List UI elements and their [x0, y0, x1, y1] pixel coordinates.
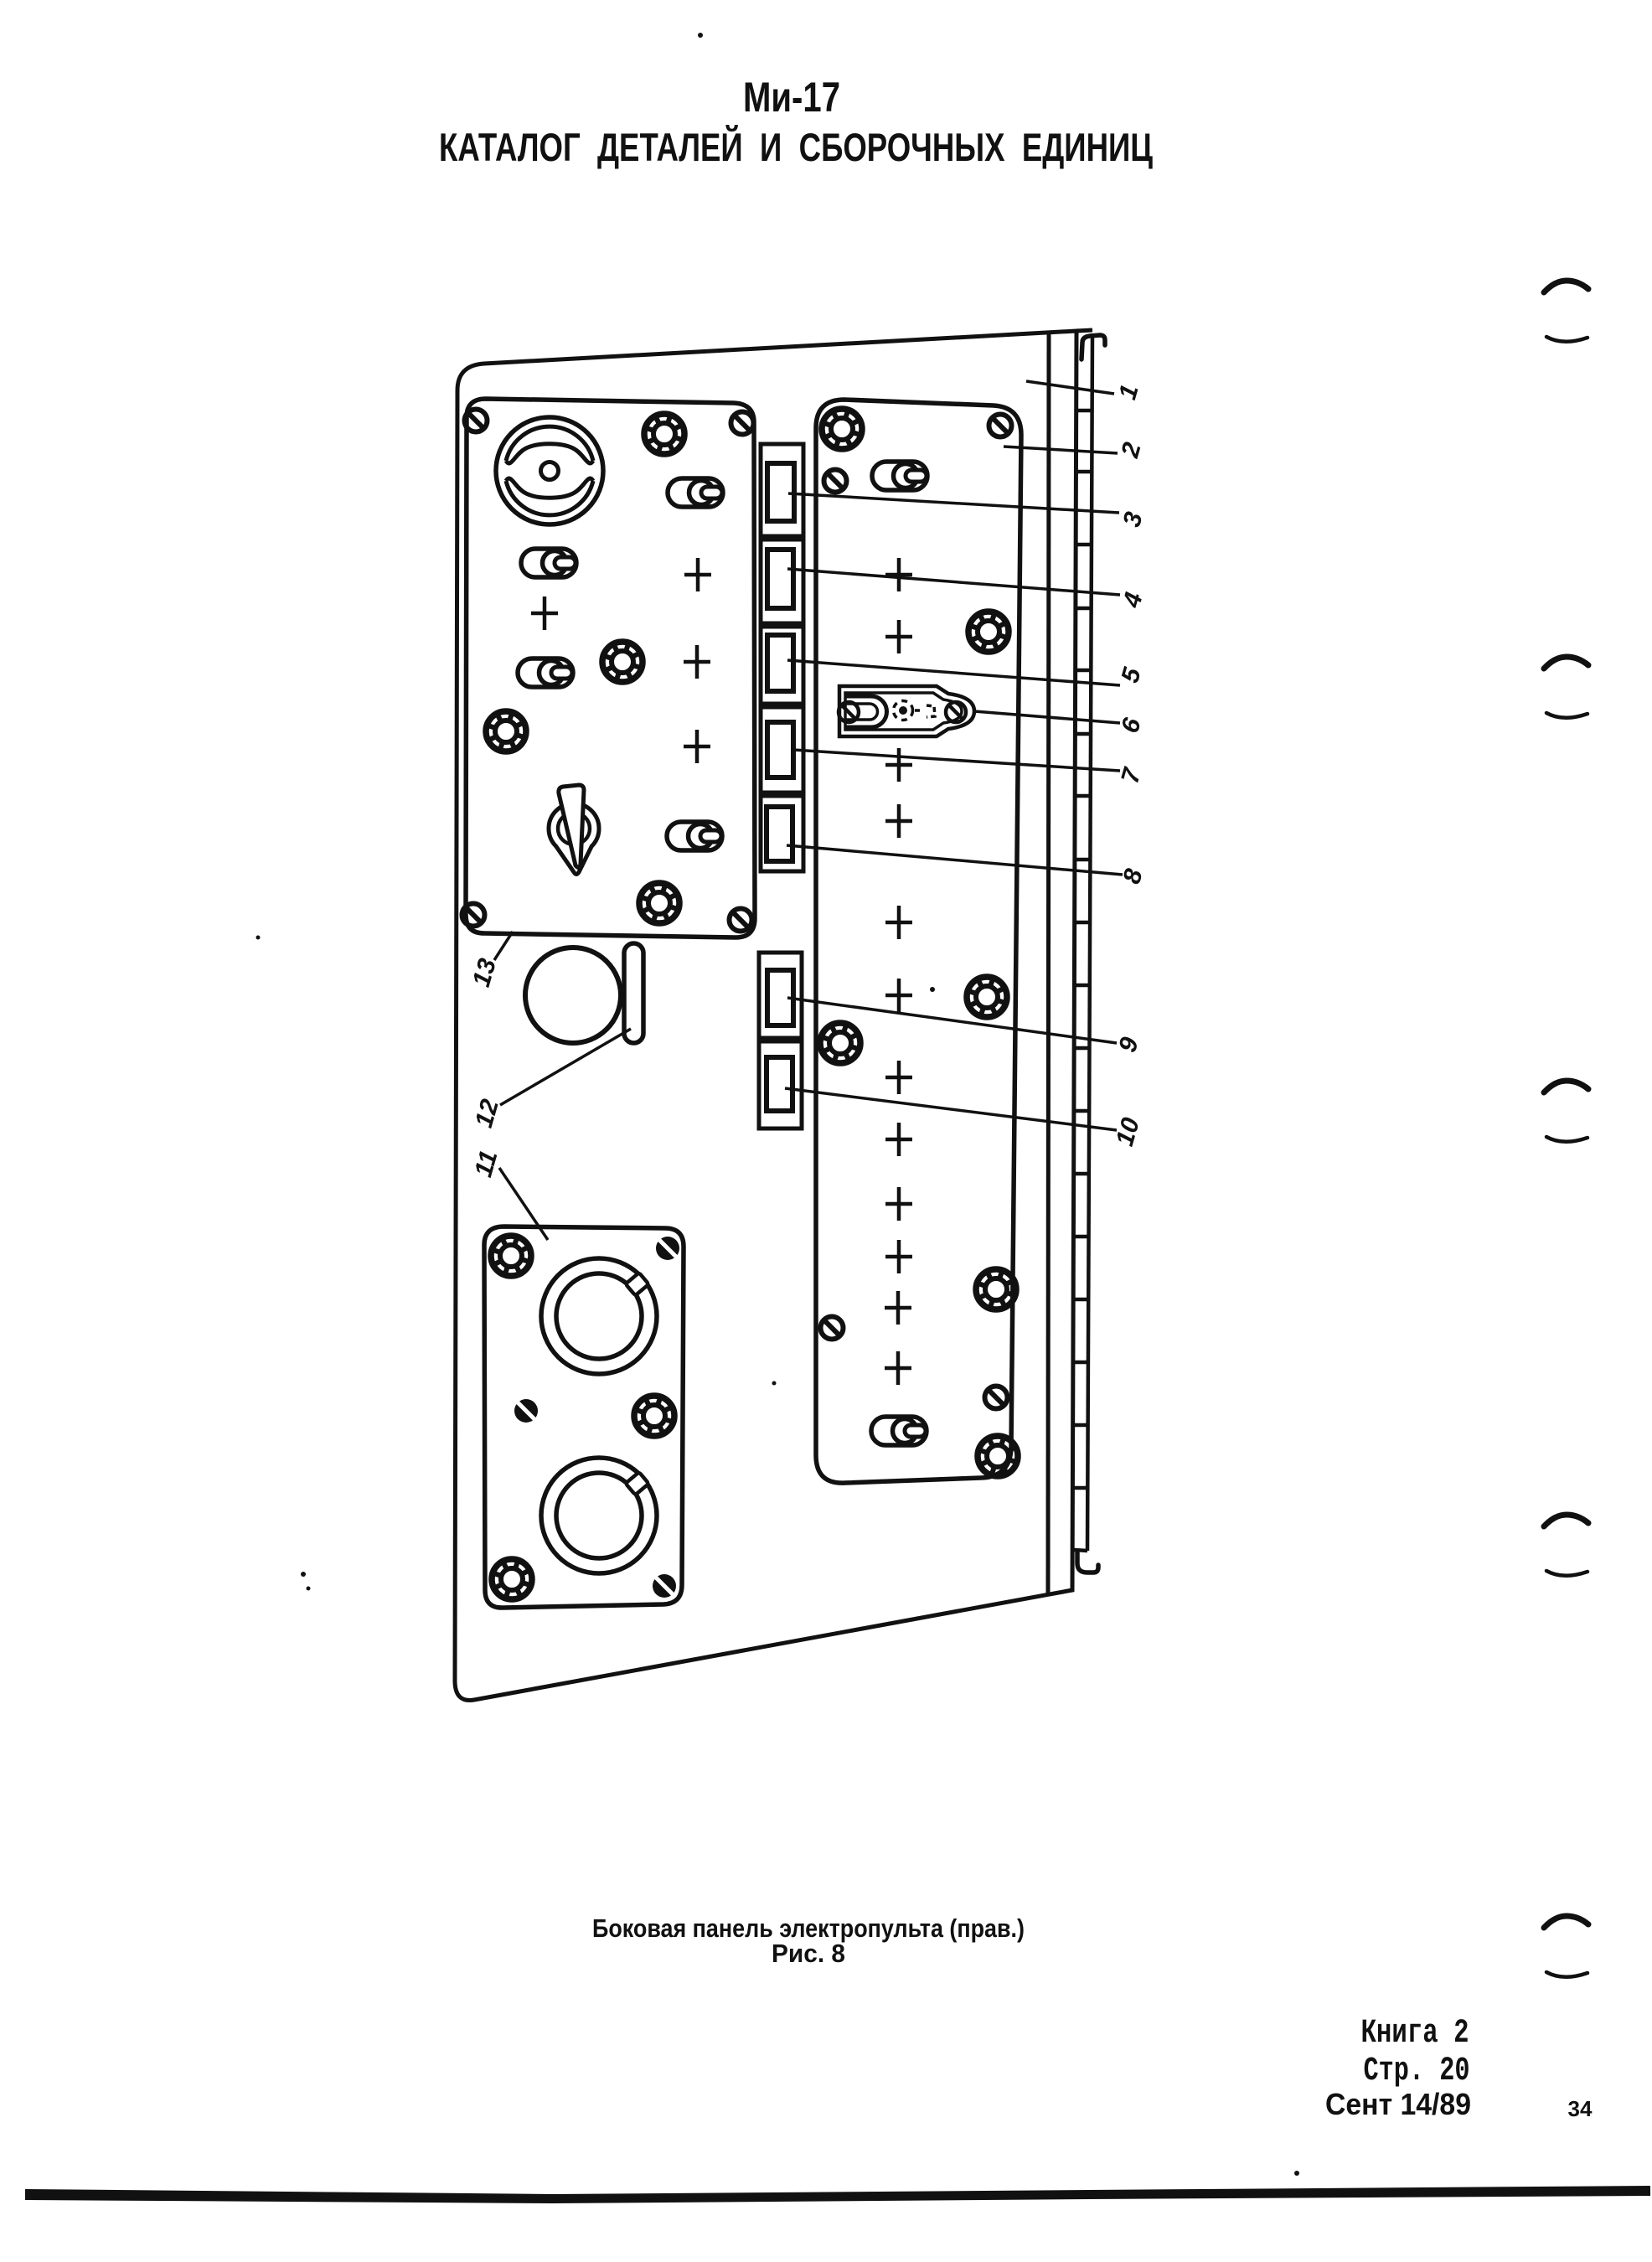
- svg-text:КАТАЛОГ ДЕТАЛЕЙ И СБОРОЧНЫХ: КАТАЛОГ ДЕТАЛЕЙ И СБОРОЧНЫХ ЕДИНИЦ: [439, 125, 1153, 169]
- svg-text:34: 34: [1568, 2096, 1593, 2121]
- svg-text:Ми-17: Ми-17: [743, 74, 840, 121]
- svg-text:Сент 14/89: Сент 14/89: [1325, 2087, 1471, 2121]
- svg-text:Книга 2: Книга 2: [1361, 2015, 1469, 2053]
- svg-text:Стр. 20: Стр. 20: [1364, 2053, 1470, 2090]
- svg-text:Рис. 8: Рис. 8: [772, 1939, 845, 1968]
